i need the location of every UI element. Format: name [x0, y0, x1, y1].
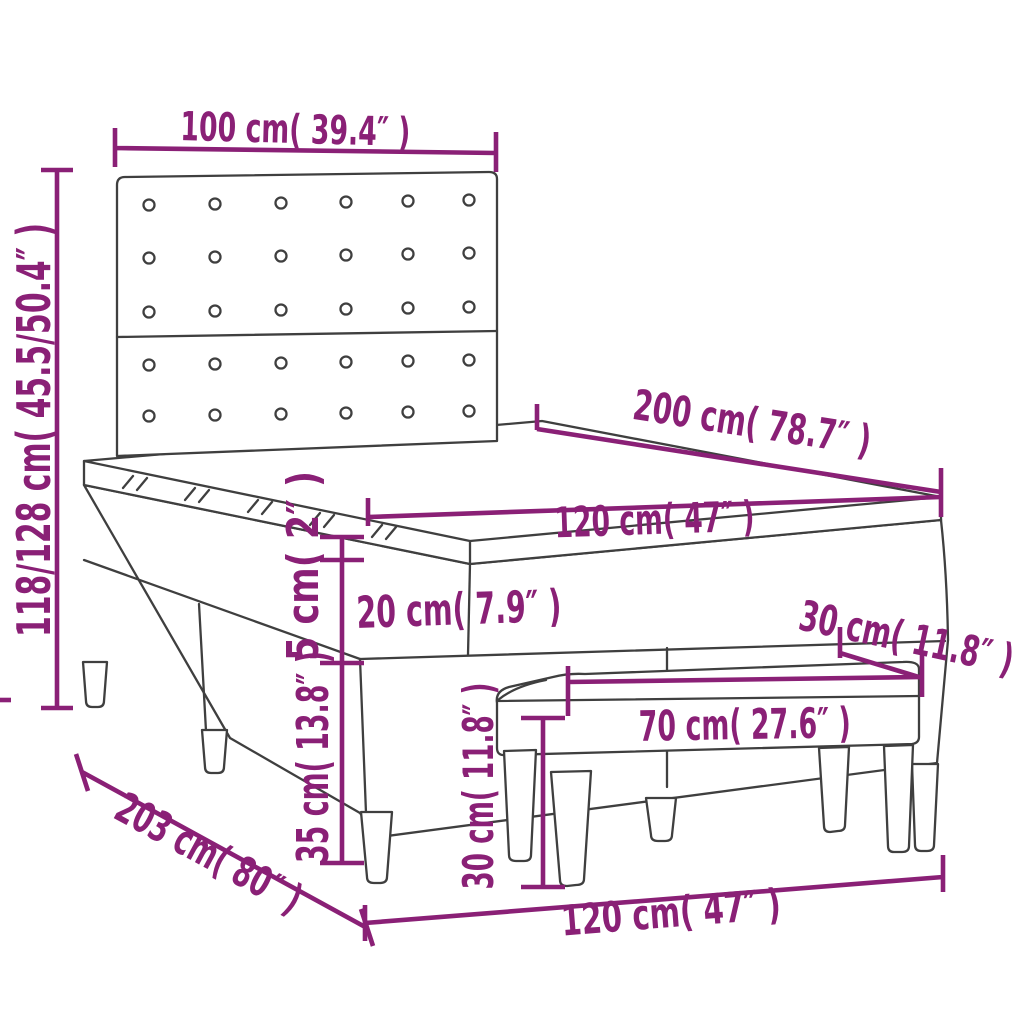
bed-line-art	[83, 172, 948, 886]
dim-headboard-width: 100 cm( 39.4″ )	[115, 104, 496, 172]
dim-mattress-width-label: 120 cm( 47″ )	[554, 492, 756, 548]
dim-mattress-height-label: 20 cm( 7.9″ )	[356, 581, 563, 639]
dim-headboard-width-label: 100 cm( 39.4″ )	[180, 104, 411, 156]
headboard	[117, 172, 497, 456]
dim-overall-height: 118/128 cm( 45.5/50.4″ )	[7, 170, 73, 708]
dim-frame-width: 120 cm( 47″ )	[365, 855, 943, 946]
headboard-panel	[117, 172, 497, 456]
dim-topper-height-label: 5 cm( 2″ )	[278, 471, 329, 661]
dim-overall-height-label: 118/128 cm( 45.5/50.4″ )	[7, 223, 61, 637]
dim-base-height-label: 35 cm( 13.8″ )	[288, 651, 339, 863]
dimension-diagram: 100 cm( 39.4″ ) 118/128 cm( 45.5/50.4″ )…	[0, 0, 1024, 1024]
bed-dimension-drawing: 100 cm( 39.4″ ) 118/128 cm( 45.5/50.4″ )…	[0, 0, 1024, 1024]
dim-bench-height-label: 30 cm( 11.8″ )	[454, 683, 503, 890]
dim-frame-length-label: 203 cm( 80″ )	[107, 783, 311, 924]
dim-bench-length-label: 70 cm( 27.6″ )	[638, 698, 851, 751]
dim-frame-width-label: 120 cm( 47″ )	[559, 879, 782, 945]
